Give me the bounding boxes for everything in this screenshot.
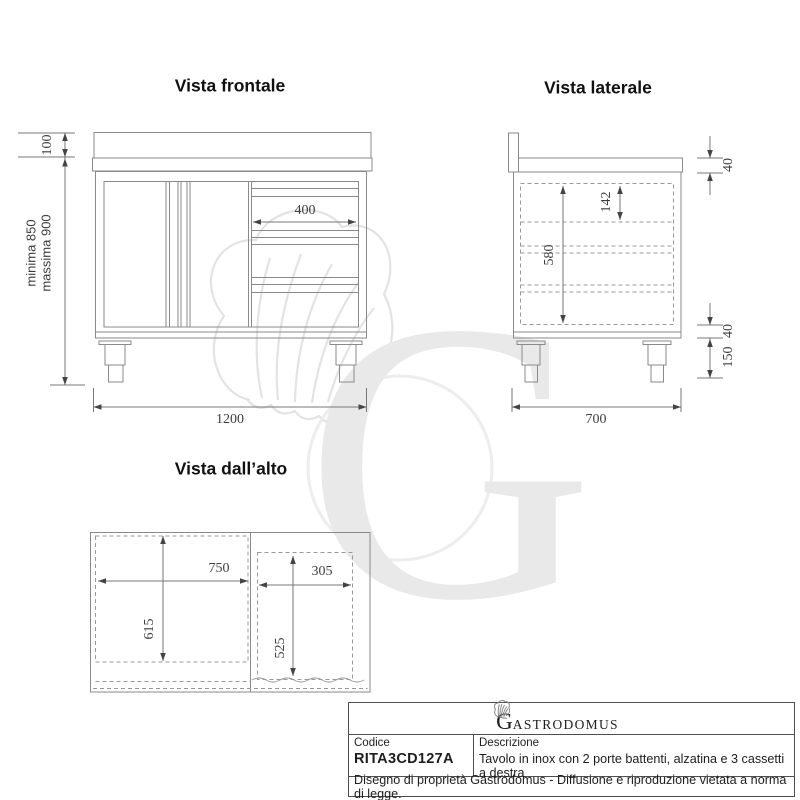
drawing-sheet: G [0, 0, 800, 800]
descrizione-label: Descrizione [479, 737, 789, 749]
dim-first-drawer-depth: 142 [599, 192, 615, 213]
dim-base-frame: 40 [721, 324, 737, 338]
dim-max-height: massima 900 [39, 214, 54, 291]
dim-right-compartment-width: 305 [312, 564, 333, 580]
codice-value: RITA3CD127A [354, 751, 468, 767]
side-view-title: Vista laterale [544, 78, 652, 99]
logo-text: ASTRODOMUS [513, 717, 619, 733]
title-block-logo-row: G ASTRODOMUS [349, 703, 794, 734]
dim-left-compartment-width: 750 [209, 561, 230, 577]
dim-total-depth: 700 [586, 412, 607, 428]
title-block-footer: Disegno di proprietà Gastrodomus - Diffu… [349, 776, 794, 796]
gastrodomus-logo: G ASTRODOMUS [496, 712, 619, 733]
labels: Vista frontale Vista laterale Vista dall… [0, 0, 800, 800]
dim-left-compartment-depth: 615 [142, 619, 158, 640]
dim-drawer-width: 400 [295, 203, 316, 219]
dim-total-width: 1200 [216, 412, 244, 428]
dim-body-height: 580 [542, 245, 558, 266]
dim-right-compartment-depth: 525 [273, 638, 289, 659]
dim-top-thickness: 40 [721, 158, 737, 172]
front-view-title: Vista frontale [175, 76, 286, 97]
dim-min-height: minima 850 [24, 219, 39, 286]
title-block: G ASTRODOMUS Codice RITA3CD127A Descrizi… [348, 702, 795, 797]
chef-hat-icon [493, 699, 511, 719]
codice-label: Codice [354, 737, 468, 749]
title-block-data-row: Codice RITA3CD127A Descrizione Tavolo in… [349, 734, 794, 776]
dim-leg-height: 150 [721, 347, 737, 368]
dim-alzatina-height: 100 [40, 135, 56, 156]
codice-cell: Codice RITA3CD127A [349, 735, 474, 776]
descrizione-cell: Descrizione Tavolo in inox con 2 porte b… [474, 735, 794, 776]
top-view-title: Vista dall’alto [175, 459, 288, 480]
